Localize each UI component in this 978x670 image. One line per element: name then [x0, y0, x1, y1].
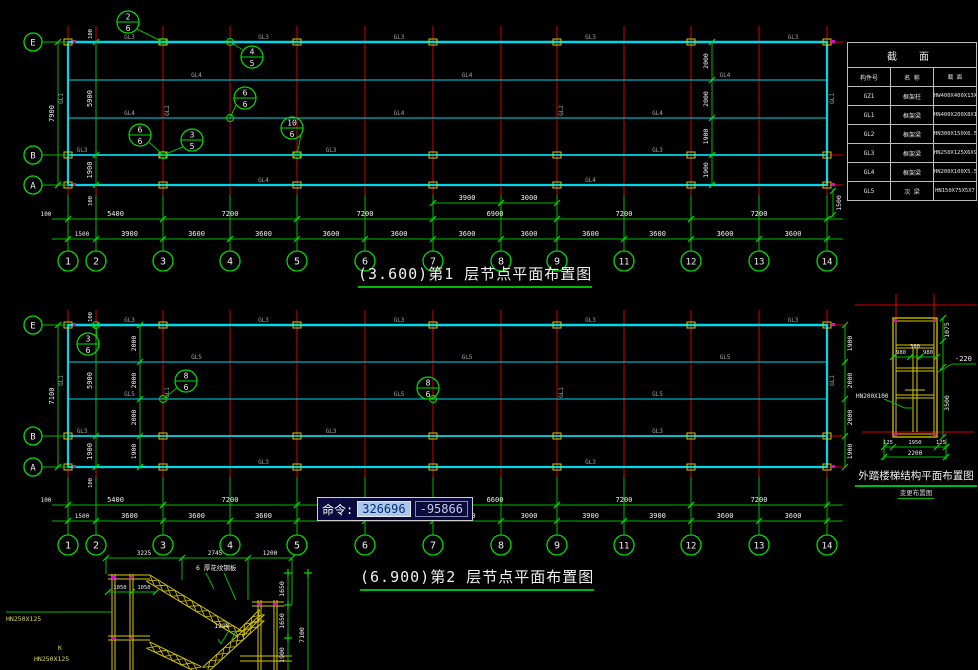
cad-line — [137, 29, 163, 42]
stair-plan-title: 外踏楼梯结构平面布置图 — [855, 468, 977, 487]
axis-number: 7 — [430, 541, 436, 552]
beam-label: GL3 — [77, 147, 88, 154]
dim-text: 100 — [88, 312, 94, 322]
table-cell: HN150X75X5X7 — [934, 182, 977, 201]
beam-label: GL4 — [124, 110, 135, 117]
magenta-mark — [832, 40, 835, 43]
dim-text: 3900 — [649, 512, 666, 520]
command-input-box[interactable]: 命令: 326696 -95866 — [317, 497, 473, 521]
stair-frame — [893, 318, 937, 437]
cad-line — [224, 573, 236, 600]
beam-label: GL3 — [585, 34, 596, 41]
plan2-title: (6.900)第2 层节点平面布置图 — [360, 566, 594, 591]
axis-number: 2 — [93, 257, 99, 268]
dim-text: 1900 — [846, 444, 854, 460]
dim-text: 7200 — [751, 496, 768, 504]
magenta-mark — [832, 323, 835, 326]
callout-number: 4 — [250, 48, 255, 57]
axis-number: 12 — [686, 542, 697, 552]
dim-text: 3600 — [649, 230, 666, 238]
magenta-mark — [112, 637, 115, 640]
dim-text: 3600 — [255, 512, 272, 520]
beam-label: GL3 — [258, 34, 269, 41]
stair-plan-subtitle-text: 变更布置图 — [898, 489, 935, 499]
dim-text: 980 — [896, 350, 906, 356]
dim-text: 3600 — [188, 230, 205, 238]
dim-text: 5900 — [86, 372, 94, 389]
dim-text: 3600 — [323, 230, 340, 238]
section-note: 6 厚花纹钢板 — [196, 563, 237, 572]
dim-text: 7900 — [48, 105, 56, 122]
table-title: 截 面 — [848, 43, 977, 68]
dim-text: 1650 — [278, 581, 286, 597]
callout-sheet: 6 — [290, 130, 295, 139]
cad-workspace[interactable]: 1500390036003600360036003600360036003600… — [0, 0, 978, 670]
plan1-elevation: (3.600) — [358, 265, 428, 283]
beam-label: GL3 — [585, 459, 596, 466]
axis-number: 14 — [822, 258, 833, 268]
table-cell: 框架梁 — [891, 144, 934, 163]
cad-line — [218, 639, 221, 644]
dim-text: 3900 — [582, 512, 599, 520]
dim-text: 6600 — [487, 496, 504, 504]
beam-label: GL5 — [124, 391, 135, 398]
magenta-mark — [112, 576, 115, 579]
table-cell: GL1 — [848, 106, 891, 125]
callout-sheet: 6 — [126, 24, 131, 33]
axis-number: 13 — [754, 258, 765, 268]
beam-label: GL1 — [58, 93, 65, 104]
beam-label: GL3 — [652, 147, 663, 154]
dim-text: 100 — [41, 211, 52, 218]
dim-text: 2000 — [130, 410, 138, 426]
beam-label: GL5 — [720, 354, 731, 361]
dim-text: 2000 — [702, 91, 710, 107]
dim-text: 3000 — [521, 194, 538, 202]
beam-label: GL3 — [258, 317, 269, 324]
dim-text: 7200 — [222, 496, 239, 504]
dim-text: 1200 — [263, 550, 278, 557]
dim-text: 3600 — [717, 512, 734, 520]
table-cell: GL2 — [848, 125, 891, 144]
dim-text: 5900 — [86, 90, 94, 107]
axis-number: 1 — [65, 257, 71, 268]
axis-number: 5 — [294, 541, 300, 552]
dim-text: 7200 — [357, 210, 374, 218]
dim-text: 1900 — [278, 647, 286, 663]
dim-text: 2000 — [846, 373, 854, 389]
table-cell: HN400X200X8X13 — [934, 106, 977, 125]
dim-text: 2000 — [846, 410, 854, 426]
cad-line — [221, 632, 228, 644]
dim-text: 1650 — [278, 613, 286, 629]
dim-text: 2200 — [908, 450, 923, 457]
dim-text: 125 — [883, 440, 893, 446]
dim-text: 1900 — [702, 129, 710, 145]
dim-text: 3600 — [785, 230, 802, 238]
dim-text: 1900 — [130, 444, 138, 460]
beam-label: GL3 — [124, 34, 135, 41]
magenta-mark — [832, 465, 835, 468]
dim-text: 7200 — [616, 210, 633, 218]
magenta-mark — [832, 183, 835, 186]
callout-sheet: 6 — [138, 137, 143, 146]
table-cell: 框架梁 — [891, 106, 934, 125]
dim-text: 100 — [88, 196, 94, 206]
dim-text: 1500 — [835, 195, 843, 211]
plan1-drawing: 1500390036003600360036003600360036003600… — [24, 11, 843, 271]
dim-text: 1900 — [86, 443, 94, 460]
axis-number: 3 — [160, 541, 166, 552]
plan2-elevation: (6.900) — [360, 568, 430, 586]
dim-text: 7200 — [616, 496, 633, 504]
beam-label: GL4 — [652, 110, 663, 117]
dim-text: 7200 — [222, 210, 239, 218]
cad-line — [206, 573, 214, 589]
dim-text: 3600 — [717, 230, 734, 238]
beam-label: GL3 — [258, 459, 269, 466]
row-letter: E — [30, 322, 35, 332]
callout-sheet: 5 — [250, 59, 255, 68]
axis-number: 5 — [294, 257, 300, 268]
axis-number: 3 — [160, 257, 166, 268]
beam-label: GL3 — [394, 317, 405, 324]
table-cell: 次 梁 — [891, 182, 934, 201]
magenta-mark — [73, 40, 76, 43]
axis-number: 1 — [65, 541, 71, 552]
plan2-title-text: 第2 层节点平面布置图 — [430, 568, 594, 586]
magenta-mark — [894, 319, 897, 322]
plan1-title-text: 第1 层节点平面布置图 — [428, 265, 592, 283]
dim-text: 2000 — [130, 373, 138, 389]
member-label: HN250X125 — [34, 655, 69, 663]
dim-text: 100 — [88, 478, 94, 488]
stair-beam-label: HN200X100 — [856, 393, 889, 400]
magenta-mark — [274, 603, 277, 606]
beam-label: GL4 — [462, 72, 473, 79]
beam-label: GL3 — [585, 317, 596, 324]
table-cell: HN250X125X6X9 — [934, 144, 977, 163]
dim-text: 3600 — [391, 230, 408, 238]
dim-text: 3900 — [121, 230, 138, 238]
dim-text: 6900 — [487, 210, 504, 218]
table-cell: 框架梁 — [891, 125, 934, 144]
dim-text: 1900 — [846, 336, 854, 352]
dim-text: 3500 — [943, 395, 951, 411]
dim-text: 7100 — [48, 388, 56, 405]
axis-number: 12 — [686, 258, 697, 268]
dim-text: 3600 — [521, 230, 538, 238]
beam-label: GL3 — [788, 34, 799, 41]
command-coordinate-x[interactable]: 326696 — [357, 501, 410, 517]
command-prompt: 命令: — [322, 501, 353, 518]
beam-label: GL4 — [258, 177, 269, 184]
member-label: HN250X125 — [6, 615, 41, 623]
dim-text: 3600 — [188, 512, 205, 520]
dim-text: 3600 — [582, 230, 599, 238]
command-coordinate-y[interactable]: -95866 — [415, 501, 468, 517]
dim-text: 7200 — [751, 210, 768, 218]
beam-label: GL4 — [394, 110, 405, 117]
magenta-mark — [933, 319, 936, 322]
beam-label: GL4 — [720, 72, 731, 79]
beam-label: GL4 — [191, 72, 202, 79]
dim-text: 5400 — [107, 210, 124, 218]
stair-frame-inner — [896, 321, 934, 434]
beam-label: GL5 — [394, 391, 405, 398]
table-cell: HW400X400X13X21 — [934, 87, 977, 106]
dim-text: 1050 — [113, 585, 126, 591]
dim-text: -220 — [955, 355, 972, 363]
callout-number: 3 — [190, 131, 195, 140]
stair-section-detail: 3225274512001050105012906 厚花纹钢板165016501… — [6, 550, 312, 670]
dim-text: 1500 — [75, 513, 90, 520]
magenta-mark — [894, 433, 897, 436]
dim-text: 1900 — [86, 162, 94, 179]
callout-number: 10 — [287, 119, 297, 128]
row-letter: A — [30, 464, 36, 474]
dim-text: 5400 — [107, 496, 124, 504]
dim-text: 1900 — [702, 162, 710, 178]
table-cell: GL4 — [848, 163, 891, 182]
axis-number: 13 — [754, 542, 765, 552]
row-letter: A — [30, 182, 36, 192]
dim-text: 1290 — [214, 622, 230, 630]
section-table: 截 面构件号名 称截 面GZ1框架柱HW400X400X13X21GL1框架梁H… — [847, 42, 977, 201]
table-cell: HN300X150X6.5X9 — [934, 125, 977, 144]
axis-number: 2 — [93, 541, 99, 552]
callout-number: 3 — [86, 335, 91, 344]
beam-label: GL5 — [652, 391, 663, 398]
stair-plan-detail: 10753500-22098030098012519501252200HN200… — [855, 294, 977, 460]
dim-text: 1950 — [908, 440, 921, 446]
dim-text: 300 — [910, 344, 920, 350]
dim-text: 2745 — [208, 550, 223, 557]
dim-text: 980 — [923, 350, 933, 356]
magenta-mark — [933, 433, 936, 436]
beam-label: GL3 — [652, 428, 663, 435]
callout-number: 6 — [138, 126, 143, 135]
callout-sheet: 6 — [184, 383, 189, 392]
table-cell: GL5 — [848, 182, 891, 201]
beam-label: GL2 — [164, 105, 171, 116]
table-cell: GZ1 — [848, 87, 891, 106]
member-label: K — [58, 644, 62, 652]
dim-text: 3600 — [255, 230, 272, 238]
axis-number: 9 — [554, 541, 560, 552]
axis-number: 6 — [362, 541, 368, 552]
beam-label: GL2 — [558, 105, 565, 116]
table-cell: GL3 — [848, 144, 891, 163]
magenta-mark — [129, 637, 132, 640]
beam-label: GL3 — [326, 147, 337, 154]
dim-text: 125 — [936, 440, 946, 446]
beam-label: GL1 — [829, 93, 836, 104]
dim-text: 3900 — [459, 194, 476, 202]
dim-text: 1050 — [137, 585, 150, 591]
dim-text: 1500 — [75, 231, 90, 238]
beam-label: GL3 — [394, 34, 405, 41]
beam-label: GL5 — [462, 354, 473, 361]
axis-number: 4 — [227, 257, 233, 268]
axis-number: 8 — [498, 541, 504, 552]
table-header: 构件号 — [848, 68, 891, 87]
table-cell: HN200X100X5.5X8 — [934, 163, 977, 182]
dim-text: 3225 — [137, 550, 152, 557]
beam-label: GL1 — [829, 375, 836, 386]
callout-number: 6 — [243, 89, 248, 98]
magenta-mark — [73, 323, 76, 326]
callout-number: 8 — [184, 372, 189, 381]
cad-line — [884, 399, 905, 408]
axis-number: 11 — [619, 258, 630, 268]
dim-text: 3600 — [785, 512, 802, 520]
row-letter: E — [30, 39, 35, 49]
dim-text: 100 — [88, 29, 94, 39]
axis-number: 4 — [227, 541, 233, 552]
cad-line — [149, 142, 163, 155]
axis-number: 14 — [822, 542, 833, 552]
magenta-mark — [129, 576, 132, 579]
dim-text: 2000 — [702, 53, 710, 69]
dim-text: 3600 — [121, 512, 138, 520]
row-letter: B — [30, 152, 35, 162]
magenta-mark — [73, 465, 76, 468]
beam-label: GL1 — [58, 375, 65, 386]
dim-text: 2000 — [130, 336, 138, 352]
table-cell: 框架柱 — [891, 87, 934, 106]
beam-label: GL4 — [585, 177, 596, 184]
beam-label: GL3 — [788, 317, 799, 324]
table-header: 截 面 — [934, 68, 977, 87]
callout-sheet: 5 — [190, 142, 195, 151]
dim-text: 1075 — [943, 322, 951, 338]
magenta-mark — [73, 183, 76, 186]
plan1-title: (3.600)第1 层节点平面布置图 — [358, 263, 592, 288]
dim-text: 100 — [41, 497, 52, 504]
beam-label: GL3 — [124, 317, 135, 324]
table-header: 名 称 — [891, 68, 934, 87]
beam-label: GL3 — [77, 428, 88, 435]
callout-number: 2 — [126, 13, 131, 22]
beam-label: GL1 — [558, 387, 565, 398]
stair-plan-subtitle: 变更布置图 — [855, 487, 977, 497]
table-cell: 框架梁 — [891, 163, 934, 182]
dim-text: 7100 — [298, 627, 306, 643]
callout-number: 8 — [426, 379, 431, 388]
axis-number: 11 — [619, 542, 630, 552]
dim-text: 3600 — [459, 230, 476, 238]
callout-sheet: 6 — [243, 100, 248, 109]
callout-sheet: 6 — [86, 346, 91, 355]
row-letter: B — [30, 433, 35, 443]
beam-label: GL5 — [191, 354, 202, 361]
magenta-mark — [258, 603, 261, 606]
beam-label: GL3 — [326, 428, 337, 435]
dim-text: 3000 — [521, 512, 538, 520]
